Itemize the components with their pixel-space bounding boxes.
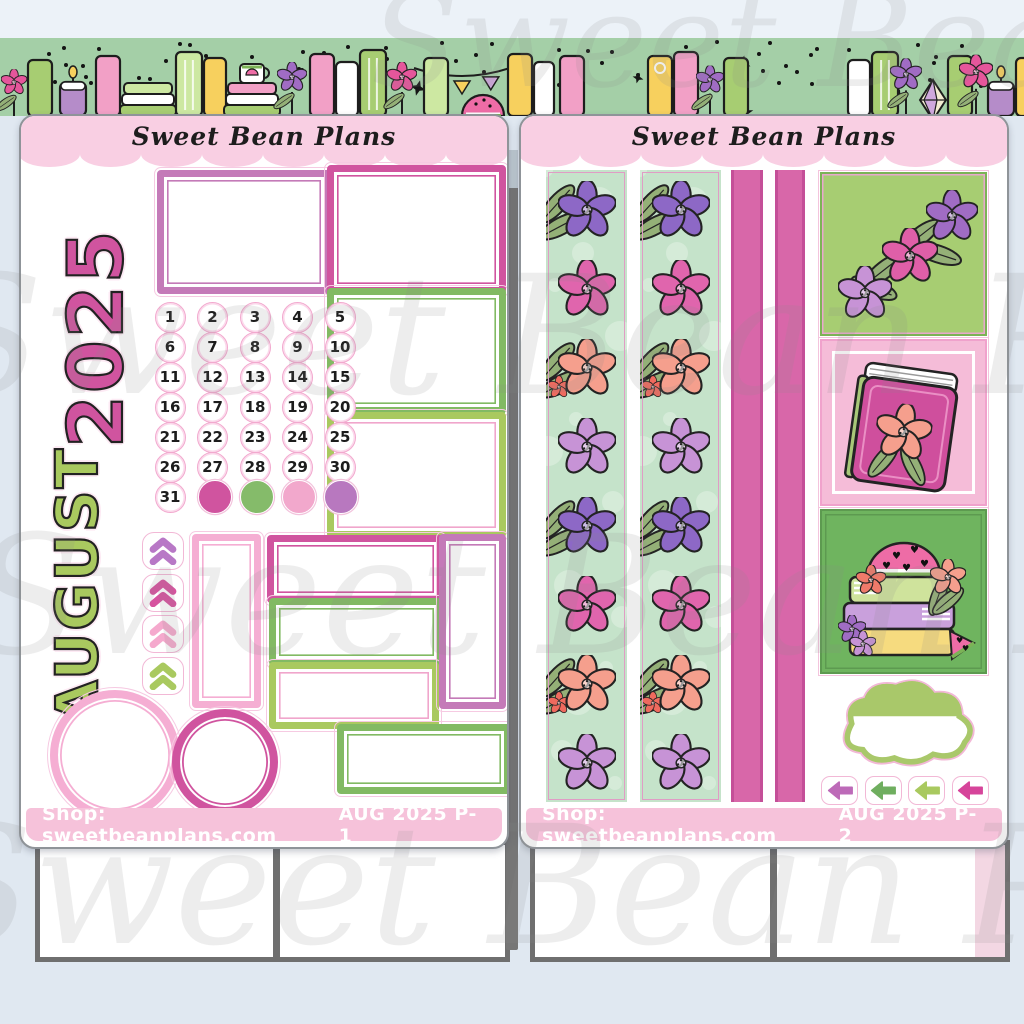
page-label: AUG 2025 P-1: [339, 803, 486, 847]
sticker-art-book-stack: ♥♥ ♥♥ ♥ ♥♥: [820, 509, 987, 674]
date-circle: 18: [240, 392, 271, 423]
partial-sticker-box: [530, 840, 775, 962]
washi-strip-pink: [731, 170, 763, 802]
sticker-art-flower-branch: [820, 172, 987, 336]
date-circle: 2: [197, 302, 228, 333]
sticker-art-pink-book: [820, 339, 987, 506]
arrow-left-icon: [865, 776, 902, 805]
date-circle: 24: [282, 422, 313, 453]
sticker-cloud: [824, 673, 986, 767]
chevron-up-icon: [142, 657, 184, 695]
color-dot-sticker: [240, 480, 274, 514]
date-circle: 1: [155, 302, 186, 333]
washi-strip-floral: [640, 170, 721, 802]
sticker-circle-pink: [172, 709, 278, 815]
date-circle: 9: [282, 332, 313, 363]
brand-script: Sweet Bean Plans: [521, 122, 1007, 151]
date-circle: 19: [282, 392, 313, 423]
brand-script: Sweet Bean Plans: [21, 122, 507, 151]
date-circle: 27: [197, 452, 228, 483]
shop-label: Shop: sweetbeanplans.com: [542, 803, 839, 847]
partial-sticker-box: [35, 840, 278, 962]
arrow-left-icon: [952, 776, 989, 805]
date-circle: 23: [240, 422, 271, 453]
washi-strip-floral: [546, 170, 627, 802]
arrow-left-icon: [821, 776, 858, 805]
sticker-rect-pink-tall: [192, 534, 261, 708]
decorative-banner: ★: [0, 38, 1024, 116]
sticker-rect-lime: [269, 662, 439, 729]
svg-text:♥: ♥: [962, 644, 969, 653]
sticker-rect-green: [269, 598, 444, 666]
sticker-rect-pink: [267, 535, 444, 603]
date-circle: 14: [282, 362, 313, 393]
sticker-box-pink: [327, 165, 506, 294]
date-circle: 4: [282, 302, 313, 333]
arrow-left-icon: [908, 776, 945, 805]
sticker-circle-lightpink: [50, 690, 180, 820]
page-label: AUG 2025 P-2: [839, 803, 986, 847]
chevron-up-icon: [142, 615, 184, 653]
washi-strip-pink: [775, 170, 805, 802]
date-circle: 17: [197, 392, 228, 423]
date-circle: 11: [155, 362, 186, 393]
partial-sticker-box: [772, 840, 1010, 962]
sheet-footer: Shop: sweetbeanplans.com AUG 2025 P-2: [526, 808, 1002, 841]
sticker-box-green: [327, 288, 506, 414]
svg-text:♥: ♥: [892, 551, 901, 562]
svg-text:♥: ♥: [920, 559, 929, 570]
product-image: ★ Sweet Bean Plans 2025 AUGUST 123456789…: [0, 0, 1024, 1024]
date-circle: 26: [155, 452, 186, 483]
date-circle: 12: [197, 362, 228, 393]
sticker-rect-green-bottom: [337, 724, 509, 794]
date-circle: 29: [282, 452, 313, 483]
color-dot-sticker: [198, 480, 232, 514]
date-circle: 31: [155, 482, 186, 513]
partial-sticker-box: [275, 840, 510, 962]
sticker-sheet-p2: Sweet Bean Plans: [519, 114, 1009, 849]
chevron-up-icon: [142, 574, 184, 612]
date-circle: 16: [155, 392, 186, 423]
date-circle: 3: [240, 302, 271, 333]
date-circle: 6: [155, 332, 186, 363]
sticker-box-lime: [327, 412, 506, 538]
date-circle: 7: [197, 332, 228, 363]
shop-label: Shop: sweetbeanplans.com: [42, 803, 339, 847]
chevron-up-icon: [142, 532, 184, 570]
color-dot-sticker: [282, 480, 316, 514]
sheet-footer: Shop: sweetbeanplans.com AUG 2025 P-1: [26, 808, 502, 841]
date-circle: 21: [155, 422, 186, 453]
svg-text:♥: ♥: [902, 563, 911, 574]
sticker-sheet-p1: Sweet Bean Plans 2025 AUGUST 12345678910…: [19, 114, 509, 849]
date-circle: 13: [240, 362, 271, 393]
date-circle: 28: [240, 452, 271, 483]
sticker-rect-orchid-tall: [439, 534, 506, 709]
sticker-box-orchid: [157, 170, 331, 294]
svg-text:♥: ♥: [882, 561, 891, 572]
svg-text:♥: ♥: [910, 545, 919, 556]
pink-strip-partial: [975, 845, 1005, 957]
date-circle: 8: [240, 332, 271, 363]
date-circle: 22: [197, 422, 228, 453]
